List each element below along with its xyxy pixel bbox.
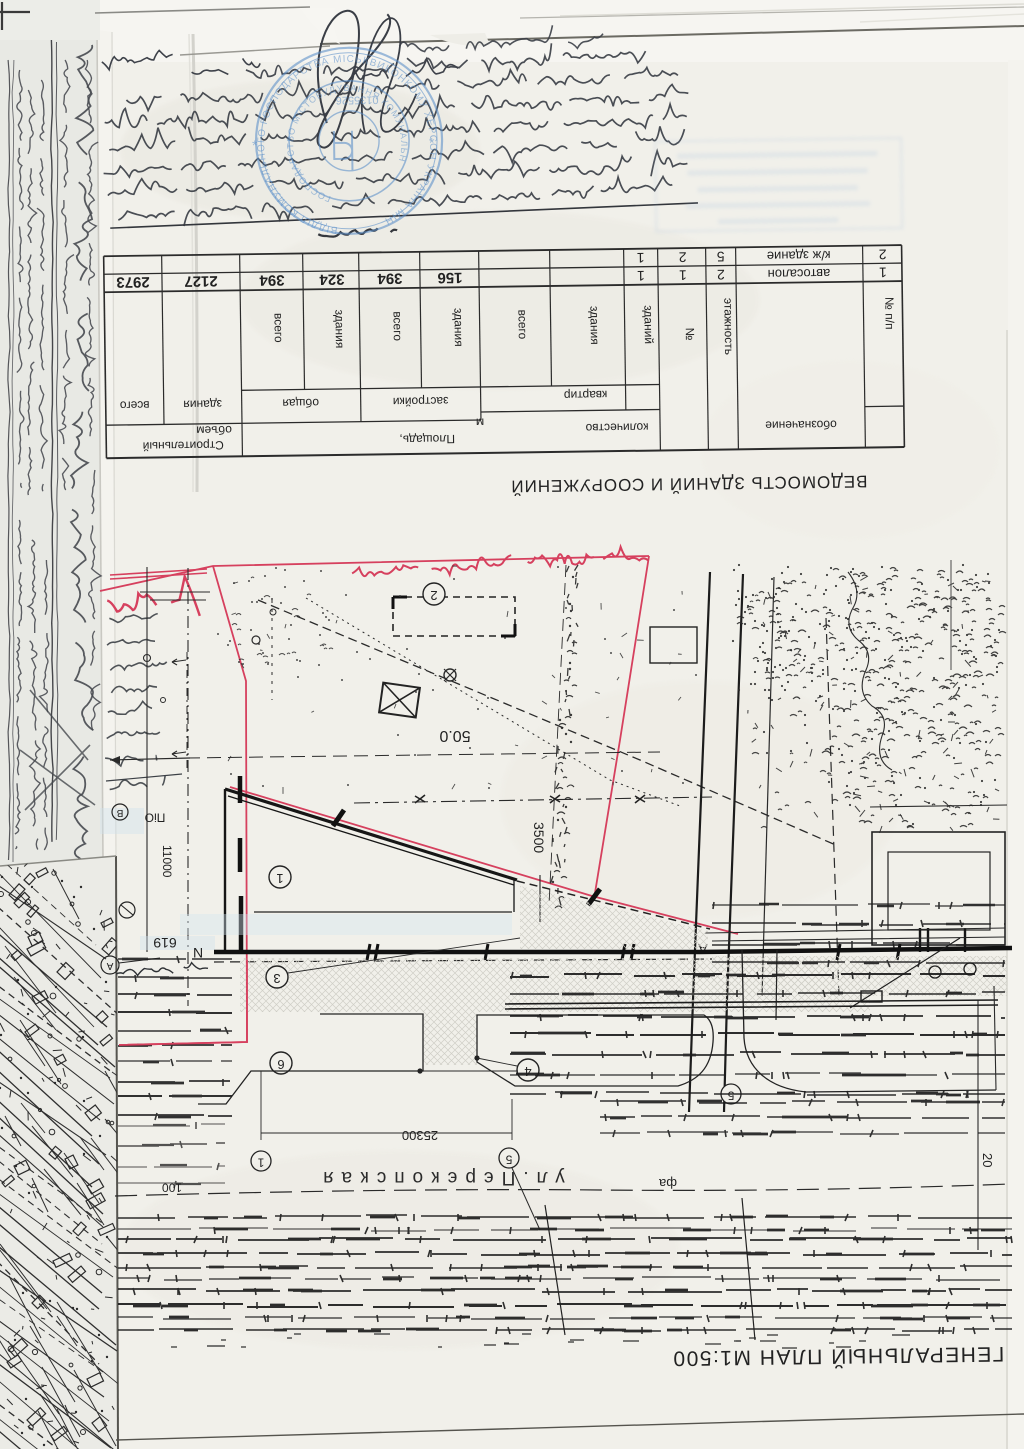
svg-text:3500: 3500	[531, 822, 547, 853]
svg-text:0135526: 0135526	[336, 93, 379, 106]
svg-text:6: 6	[277, 1057, 284, 1072]
svg-text:5: 5	[717, 249, 725, 265]
svg-text:2: 2	[679, 249, 687, 265]
svg-text:394: 394	[259, 271, 285, 288]
svg-text:В: В	[116, 807, 123, 818]
svg-text:2973: 2973	[116, 273, 150, 290]
svg-text:всего: всего	[271, 313, 285, 343]
svg-text:3: 3	[273, 971, 280, 986]
svg-text:1: 1	[257, 1156, 264, 1170]
svg-text:5: 5	[727, 1089, 734, 1103]
svg-text:ул.Пєрєкопская: ул.Пєрєкопская	[315, 1167, 565, 1188]
svg-text:общая: общая	[282, 396, 319, 411]
svg-text:20: 20	[980, 1153, 995, 1167]
svg-text:всего: всего	[390, 311, 404, 341]
svg-text:4: 4	[524, 1064, 531, 1079]
svg-text:обозначение: обозначение	[765, 418, 837, 433]
svg-text:А: А	[106, 960, 113, 971]
svg-text:394: 394	[377, 270, 403, 287]
svg-text:№: №	[683, 328, 697, 341]
svg-text:1: 1	[637, 250, 645, 266]
svg-text:156: 156	[437, 269, 462, 286]
svg-text:автосалон: автосалон	[767, 266, 830, 282]
svg-text:здания: здания	[183, 397, 222, 412]
svg-text:здания: здания	[587, 306, 602, 345]
svg-text:2127: 2127	[184, 272, 218, 289]
svg-text:*: *	[429, 135, 435, 151]
svg-text:2: 2	[430, 588, 437, 603]
svg-text:619: 619	[153, 935, 177, 951]
svg-text:1: 1	[879, 264, 887, 280]
svg-text:ГЕНЕРАЛЬНЫЙ ПЛАН М1:500: ГЕНЕРАЛЬНЫЙ ПЛАН М1:500	[672, 1342, 1005, 1371]
svg-text:всего: всего	[119, 398, 149, 412]
svg-text:всего: всего	[515, 309, 529, 339]
svg-text:2: 2	[878, 246, 886, 262]
svg-text:324: 324	[319, 270, 345, 287]
svg-text:11000: 11000	[160, 845, 174, 878]
svg-text:объем: объем	[196, 423, 232, 437]
svg-text:зданий: зданий	[641, 305, 656, 344]
svg-text:2: 2	[717, 267, 725, 283]
svg-text:здания: здания	[332, 309, 347, 348]
svg-text:этажность: этажность	[721, 298, 736, 355]
svg-text:квартир: квартир	[563, 388, 607, 403]
svg-text:фа: фа	[658, 1176, 677, 1191]
svg-text:1: 1	[276, 871, 283, 886]
svg-text:1: 1	[637, 268, 645, 284]
svg-text:25300: 25300	[402, 1128, 438, 1143]
svg-text:застройки: застройки	[393, 394, 449, 409]
svg-text:Площадь,: Площадь,	[399, 432, 455, 447]
svg-text:№ п/п: № п/п	[882, 297, 896, 330]
svg-text:к/ж здание: к/ж здание	[767, 248, 831, 264]
svg-text:Строительный: Строительный	[143, 438, 224, 453]
svg-text:1: 1	[679, 267, 687, 283]
svg-text:50.0: 50.0	[439, 727, 470, 744]
svg-text:м: м	[476, 416, 484, 430]
svg-text:ПіО: ПіО	[145, 811, 166, 825]
svg-text:5: 5	[505, 1153, 512, 1167]
svg-text:здания: здания	[451, 308, 466, 347]
svg-text:*: *	[252, 137, 258, 153]
svg-text:количество: количество	[585, 420, 648, 435]
